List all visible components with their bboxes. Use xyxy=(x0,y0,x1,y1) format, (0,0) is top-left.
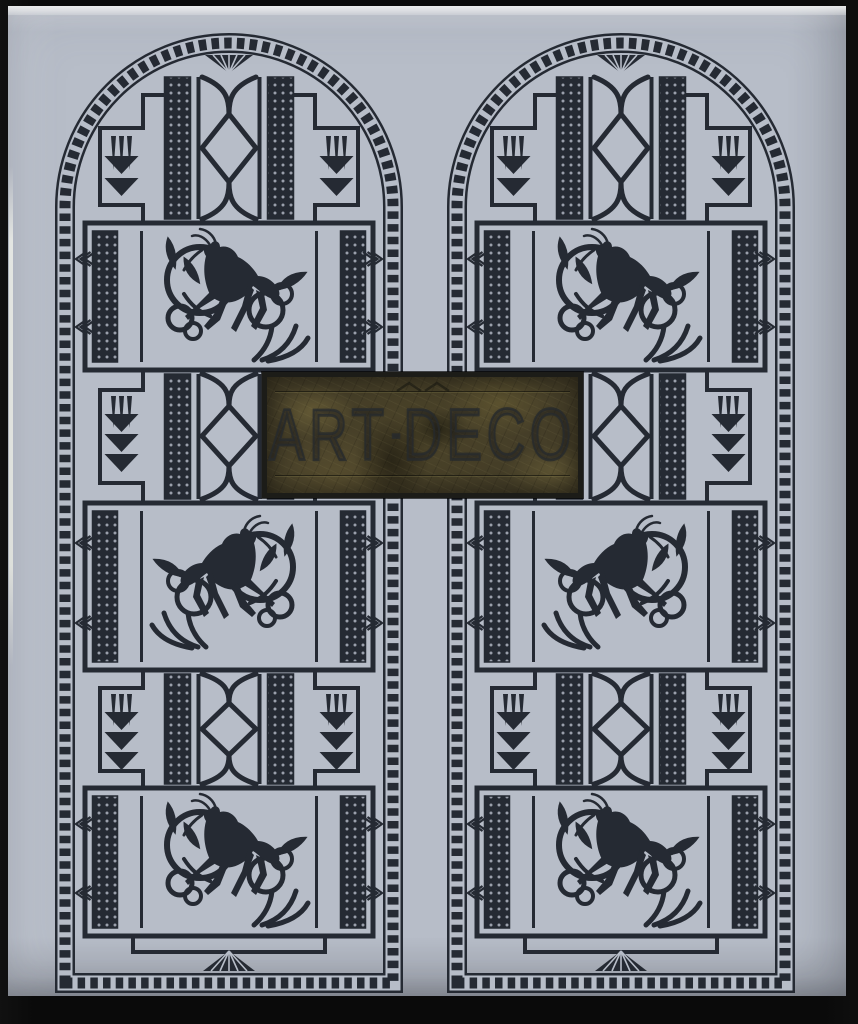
book-cover: ART-DECO xyxy=(8,6,846,996)
book-title: ART-DECO xyxy=(269,399,576,472)
book-title-part2: DECO xyxy=(403,393,576,475)
book-title-part1: ART xyxy=(269,393,389,475)
right-arch xyxy=(457,43,785,983)
arch-ornament-svg xyxy=(8,6,846,996)
wing-motif-icon xyxy=(393,380,453,393)
book-cover-photo: { "photo": { "background_color": "#0a0a0… xyxy=(0,0,858,1024)
left-arch xyxy=(65,43,393,983)
title-plaque: ART-DECO xyxy=(262,372,583,498)
title-separator: - xyxy=(389,413,404,453)
